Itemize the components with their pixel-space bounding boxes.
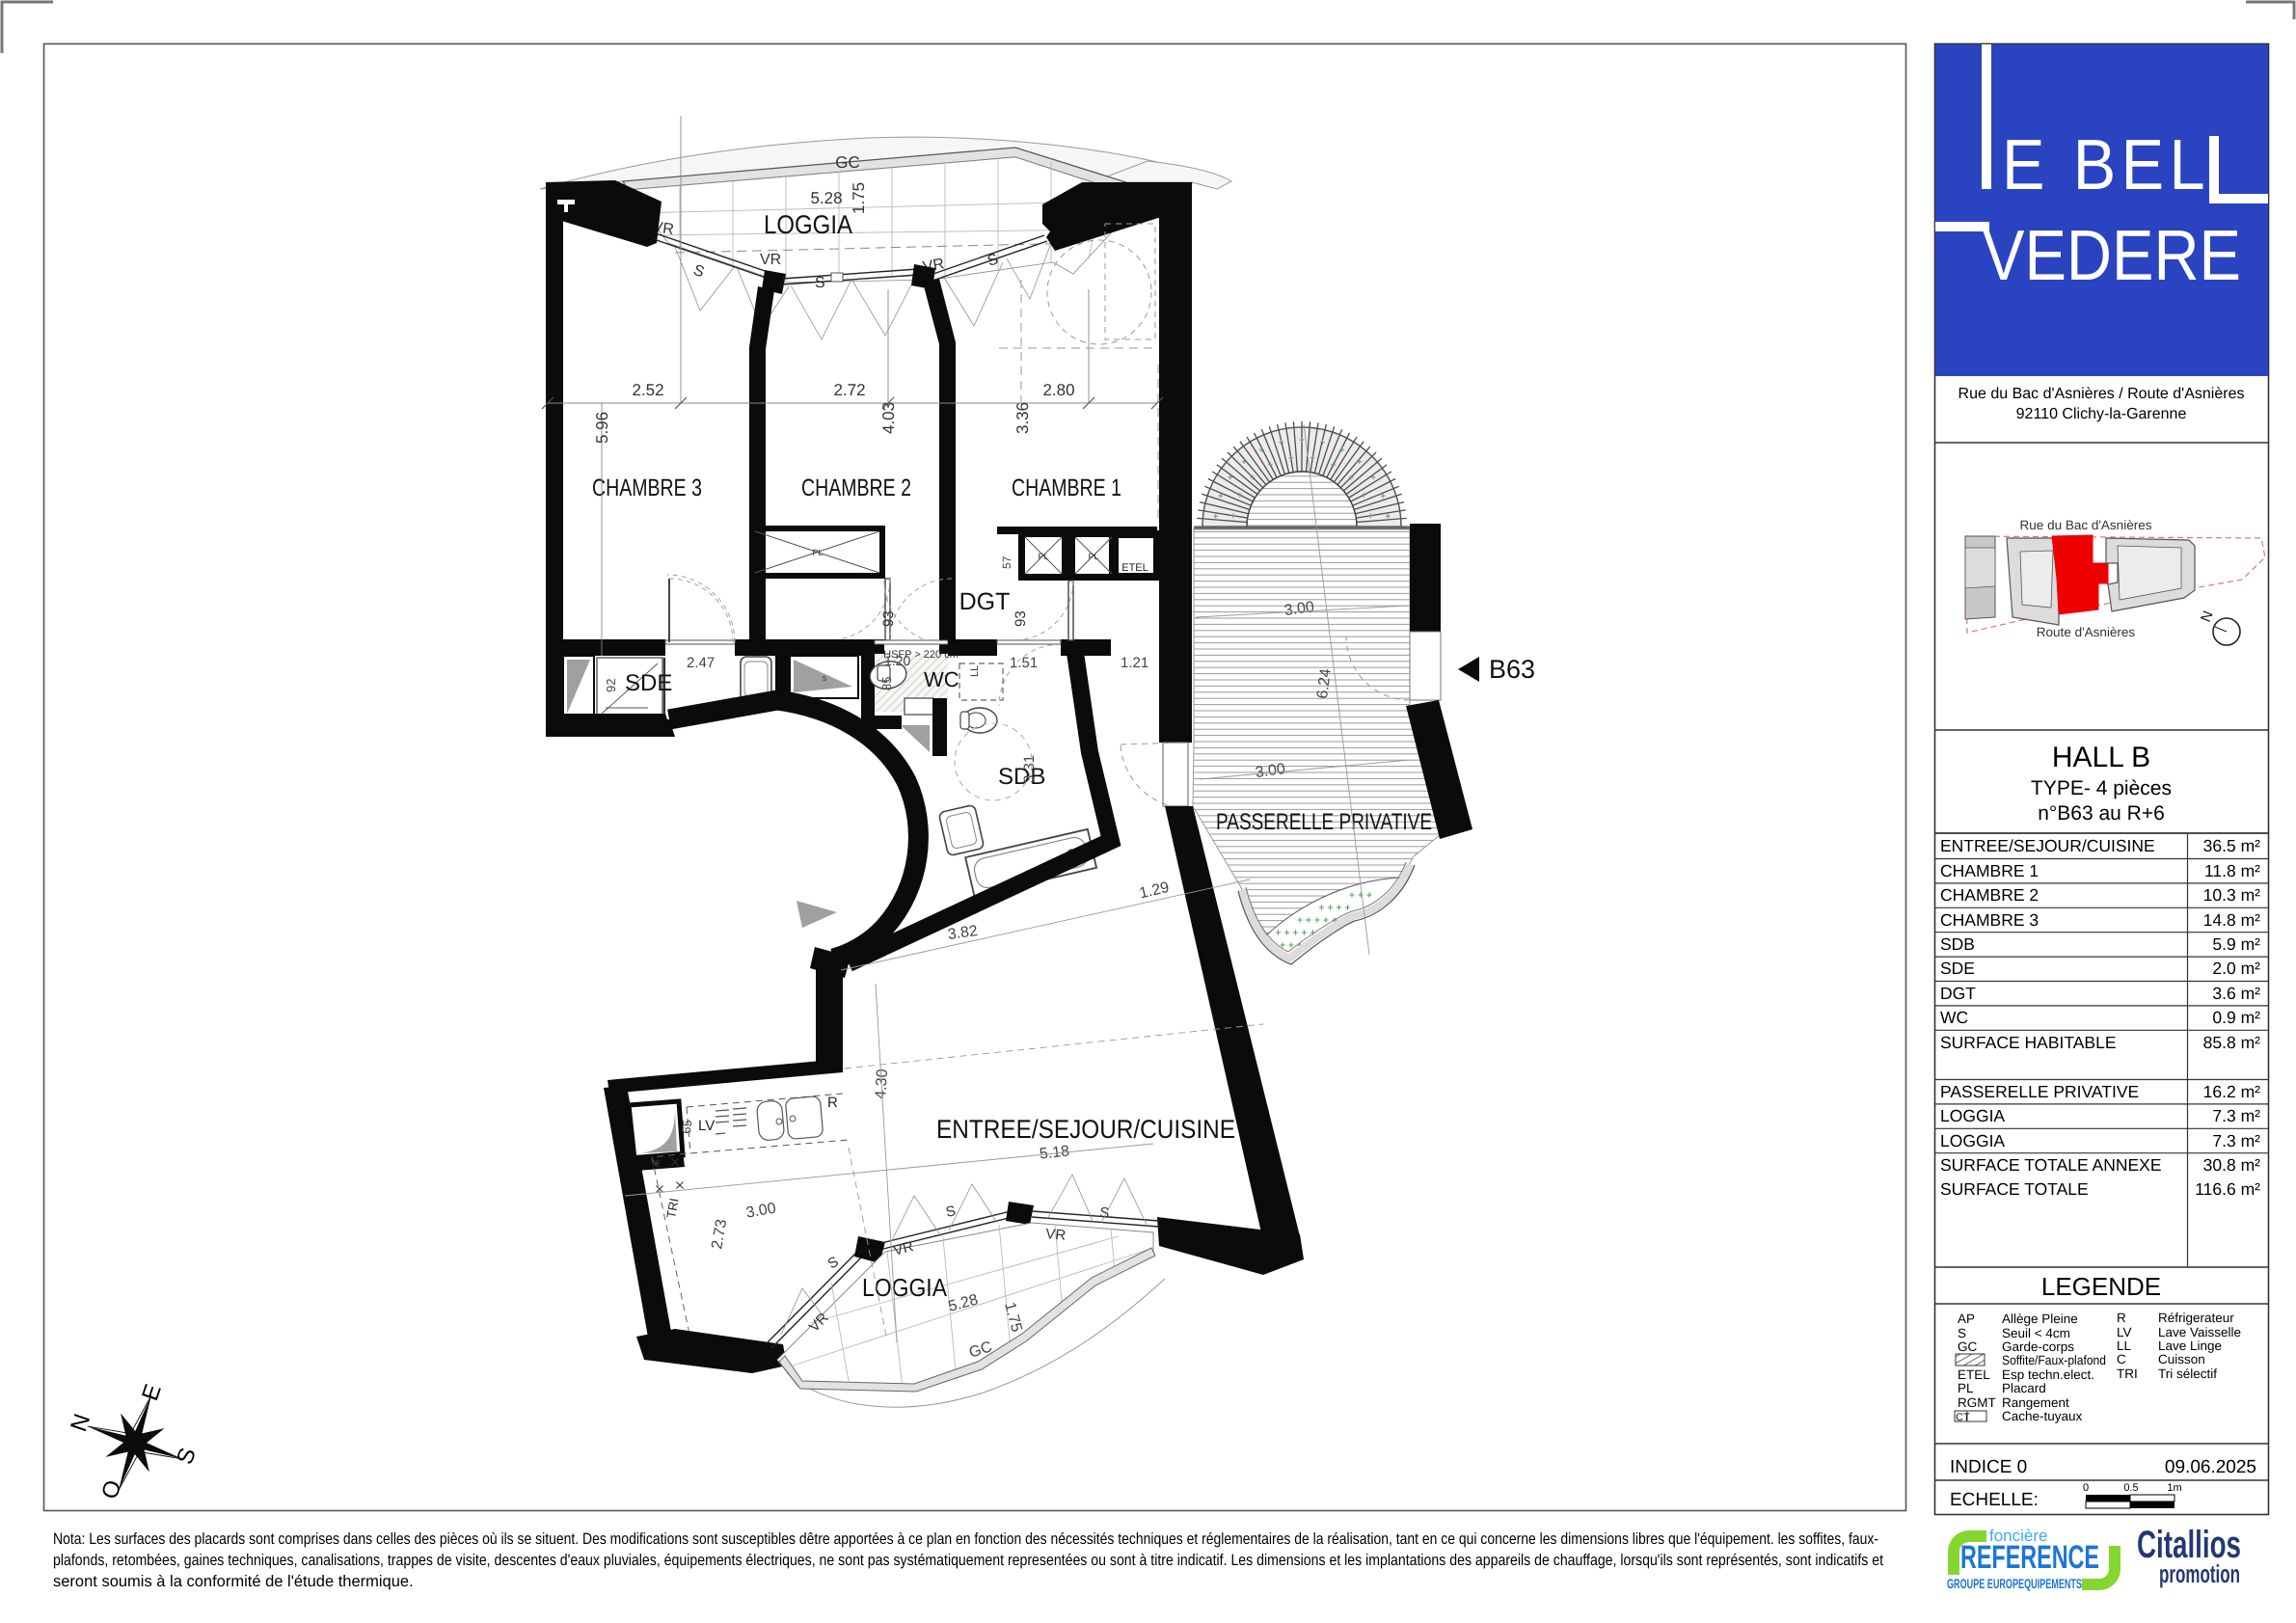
svg-text:57: 57 <box>1000 555 1013 569</box>
svg-text:TRI: TRI <box>2117 1366 2138 1381</box>
svg-text:3.31: 3.31 <box>1021 755 1038 783</box>
svg-text:93: 93 <box>880 610 897 627</box>
svg-text:14.8 m²: 14.8 m² <box>2203 910 2260 930</box>
svg-text:WC: WC <box>924 667 959 691</box>
svg-text:Seuil < 4cm: Seuil < 4cm <box>2002 1326 2070 1340</box>
svg-text:REFERENCE: REFERENCE <box>1960 1539 2099 1576</box>
svg-text:LOGGIA: LOGGIA <box>764 210 852 239</box>
svg-text:1.21: 1.21 <box>1121 655 1148 671</box>
svg-text:S: S <box>1958 1326 1966 1340</box>
svg-text:S: S <box>1099 1204 1110 1222</box>
svg-text:VR: VR <box>760 252 781 268</box>
svg-text:Rue du Bac d'Asnières: Rue du Bac d'Asnières <box>2020 518 2152 532</box>
svg-text:5.9 m²: 5.9 m² <box>2212 934 2260 954</box>
svg-text:Garde-corps: Garde-corps <box>2002 1339 2074 1354</box>
svg-text:93: 93 <box>1013 610 1029 627</box>
svg-text:VEDERE: VEDERE <box>1983 215 2241 295</box>
svg-text:SDE: SDE <box>625 670 672 696</box>
svg-text:2.52: 2.52 <box>632 381 663 399</box>
svg-text:PASSERELLE PRIVATIVE: PASSERELLE PRIVATIVE <box>1216 809 1432 835</box>
svg-text:Esp techn.elect.: Esp techn.elect. <box>2002 1367 2094 1382</box>
svg-text:LL: LL <box>969 665 981 677</box>
svg-text:WC: WC <box>1940 1008 1968 1027</box>
svg-text:plafonds, retombées, gaines te: plafonds, retombées, gaines techniques, … <box>53 1552 1883 1569</box>
svg-text:16.2 m²: 16.2 m² <box>2203 1082 2260 1101</box>
svg-text:LV: LV <box>2117 1325 2132 1339</box>
svg-text:65: 65 <box>679 1120 694 1135</box>
svg-text:SDB: SDB <box>1940 934 1975 954</box>
svg-text:10.3 m²: 10.3 m² <box>2203 885 2260 905</box>
svg-text:85.8 m²: 85.8 m² <box>2203 1033 2260 1052</box>
svg-text:Nota: Les surfaces des placard: Nota: Les surfaces des placards sont com… <box>53 1530 1878 1548</box>
svg-text:AP: AP <box>1958 1312 1975 1326</box>
svg-text:CHAMBRE 2: CHAMBRE 2 <box>801 474 911 501</box>
svg-text:92: 92 <box>604 679 618 692</box>
svg-text:LL: LL <box>2117 1339 2132 1353</box>
svg-text:GC: GC <box>1958 1339 1978 1354</box>
svg-text:Tri sélectif: Tri sélectif <box>2158 1366 2217 1381</box>
svg-text:promotion: promotion <box>2159 1559 2240 1588</box>
svg-text:TYPE- 4 pièces: TYPE- 4 pièces <box>2031 777 2172 799</box>
svg-text:LEGENDE: LEGENDE <box>2041 1272 2161 1301</box>
svg-text:DGT: DGT <box>959 588 1011 615</box>
svg-text:ENTREE/SEJOUR/CUISINE: ENTREE/SEJOUR/CUISINE <box>1940 836 2155 855</box>
svg-text:0.9 m²: 0.9 m² <box>2212 1008 2260 1027</box>
svg-text:2.72: 2.72 <box>833 381 865 399</box>
svg-text:SURFACE TOTALE: SURFACE TOTALE <box>1940 1179 2089 1199</box>
svg-text:Allège Pleine: Allège Pleine <box>2002 1312 2078 1326</box>
svg-text:36.5 m²: 36.5 m² <box>2203 836 2260 855</box>
svg-text:LV: LV <box>698 1118 715 1134</box>
svg-text:INDICE 0: INDICE 0 <box>1950 1457 2027 1477</box>
svg-text:1.51: 1.51 <box>1010 655 1038 671</box>
svg-text:Rangement: Rangement <box>2002 1395 2069 1410</box>
svg-text:3.36: 3.36 <box>1013 402 1032 434</box>
svg-text:5.18: 5.18 <box>1039 1143 1070 1162</box>
svg-text:09.06.2025: 09.06.2025 <box>2165 1457 2256 1477</box>
svg-text:Cuisson: Cuisson <box>2158 1352 2205 1366</box>
svg-text:SURFACE HABITABLE: SURFACE HABITABLE <box>1940 1033 2117 1052</box>
svg-text:CHAMBRE 1: CHAMBRE 1 <box>1940 861 2039 880</box>
svg-text:2.47: 2.47 <box>687 655 715 671</box>
svg-text:CT: CT <box>1956 1412 1970 1423</box>
svg-text:Cache-tuyaux: Cache-tuyaux <box>2002 1409 2083 1423</box>
svg-text:CHAMBRE 2: CHAMBRE 2 <box>1940 885 2039 905</box>
svg-text:Lave Vaisselle: Lave Vaisselle <box>2158 1325 2241 1339</box>
svg-text:LOGGIA: LOGGIA <box>1940 1106 2005 1125</box>
svg-text:3.6 m²: 3.6 m² <box>2212 984 2260 1003</box>
svg-text:HALL B: HALL B <box>2052 742 2150 773</box>
svg-text:7.3 m²: 7.3 m² <box>2212 1106 2260 1125</box>
svg-text:R: R <box>2117 1311 2126 1325</box>
svg-text:R: R <box>827 1095 838 1111</box>
svg-text:92110 Clichy-la-Garenne: 92110 Clichy-la-Garenne <box>2016 406 2187 422</box>
svg-text:2.80: 2.80 <box>1042 381 1074 399</box>
svg-text:0.5: 0.5 <box>2123 1482 2138 1494</box>
svg-text:30.8 m²: 30.8 m² <box>2203 1155 2260 1175</box>
svg-text:n°B63 au R+6: n°B63 au R+6 <box>2038 802 2165 825</box>
svg-text:S: S <box>815 275 825 291</box>
svg-text:PL: PL <box>812 548 823 557</box>
svg-text:ETEL: ETEL <box>1121 562 1148 574</box>
svg-text:5.28: 5.28 <box>810 189 842 207</box>
svg-text:LOGGIA: LOGGIA <box>1940 1131 2005 1150</box>
svg-text:5.96: 5.96 <box>593 412 611 444</box>
svg-text:RGMT: RGMT <box>1958 1395 1996 1410</box>
svg-text:ETEL: ETEL <box>1958 1367 1990 1382</box>
svg-text:C: C <box>2117 1352 2126 1366</box>
svg-text:ECHELLE:: ECHELLE: <box>1950 1490 2039 1510</box>
svg-text:s: s <box>823 673 827 683</box>
svg-text:116.6 m²: 116.6 m² <box>2195 1179 2260 1199</box>
svg-text:GROUPE EUROPEQUIPEMENTS: GROUPE EUROPEQUIPEMENTS <box>1947 1576 2082 1591</box>
svg-text:Placard: Placard <box>2002 1381 2046 1395</box>
svg-text:E BEL: E BEL <box>2002 124 2210 204</box>
svg-text:CHAMBRE 1: CHAMBRE 1 <box>1012 474 1121 501</box>
svg-text:ENTREE/SEJOUR/CUISINE: ENTREE/SEJOUR/CUISINE <box>936 1115 1235 1144</box>
svg-text:PASSERELLE PRIVATIVE: PASSERELLE PRIVATIVE <box>1940 1082 2139 1101</box>
svg-text:11.8 m²: 11.8 m² <box>2204 861 2260 880</box>
svg-text:CHAMBRE 3: CHAMBRE 3 <box>592 474 702 501</box>
svg-text:DGT: DGT <box>1940 984 1976 1003</box>
svg-text:2.0 m²: 2.0 m² <box>2212 959 2260 978</box>
svg-text:Route d'Asnières: Route d'Asnières <box>2037 625 2136 639</box>
svg-text:PL: PL <box>1958 1381 1974 1395</box>
svg-text:1.20: 1.20 <box>884 653 910 668</box>
svg-text:4.03: 4.03 <box>879 402 898 434</box>
svg-text:PL: PL <box>1038 552 1048 561</box>
svg-text:Soffite/Faux-plafond: Soffite/Faux-plafond <box>2002 1353 2106 1367</box>
svg-text:0: 0 <box>2083 1482 2089 1494</box>
svg-text:VR: VR <box>1045 1226 1067 1244</box>
svg-text:seront soumis à la conformité: seront soumis à la conformité de l'étude… <box>53 1573 414 1590</box>
svg-text:Rue du Bac d'Asnières / Route: Rue du Bac d'Asnières / Route d'Asnières <box>1958 386 2245 402</box>
svg-text:7.3 m²: 7.3 m² <box>2212 1131 2260 1150</box>
svg-text:SDE: SDE <box>1940 959 1975 978</box>
svg-text:GC: GC <box>835 153 860 172</box>
svg-text:Lave Linge: Lave Linge <box>2158 1339 2222 1353</box>
svg-text:PL: PL <box>1088 552 1098 561</box>
svg-text:1m: 1m <box>2167 1482 2181 1494</box>
svg-text:85: 85 <box>879 677 894 690</box>
svg-text:B63: B63 <box>1489 655 1535 684</box>
svg-text:CHAMBRE 3: CHAMBRE 3 <box>1940 910 2039 930</box>
svg-text:Réfrigerateur: Réfrigerateur <box>2158 1311 2234 1325</box>
svg-text:SURFACE TOTALE ANNEXE: SURFACE TOTALE ANNEXE <box>1940 1155 2162 1175</box>
